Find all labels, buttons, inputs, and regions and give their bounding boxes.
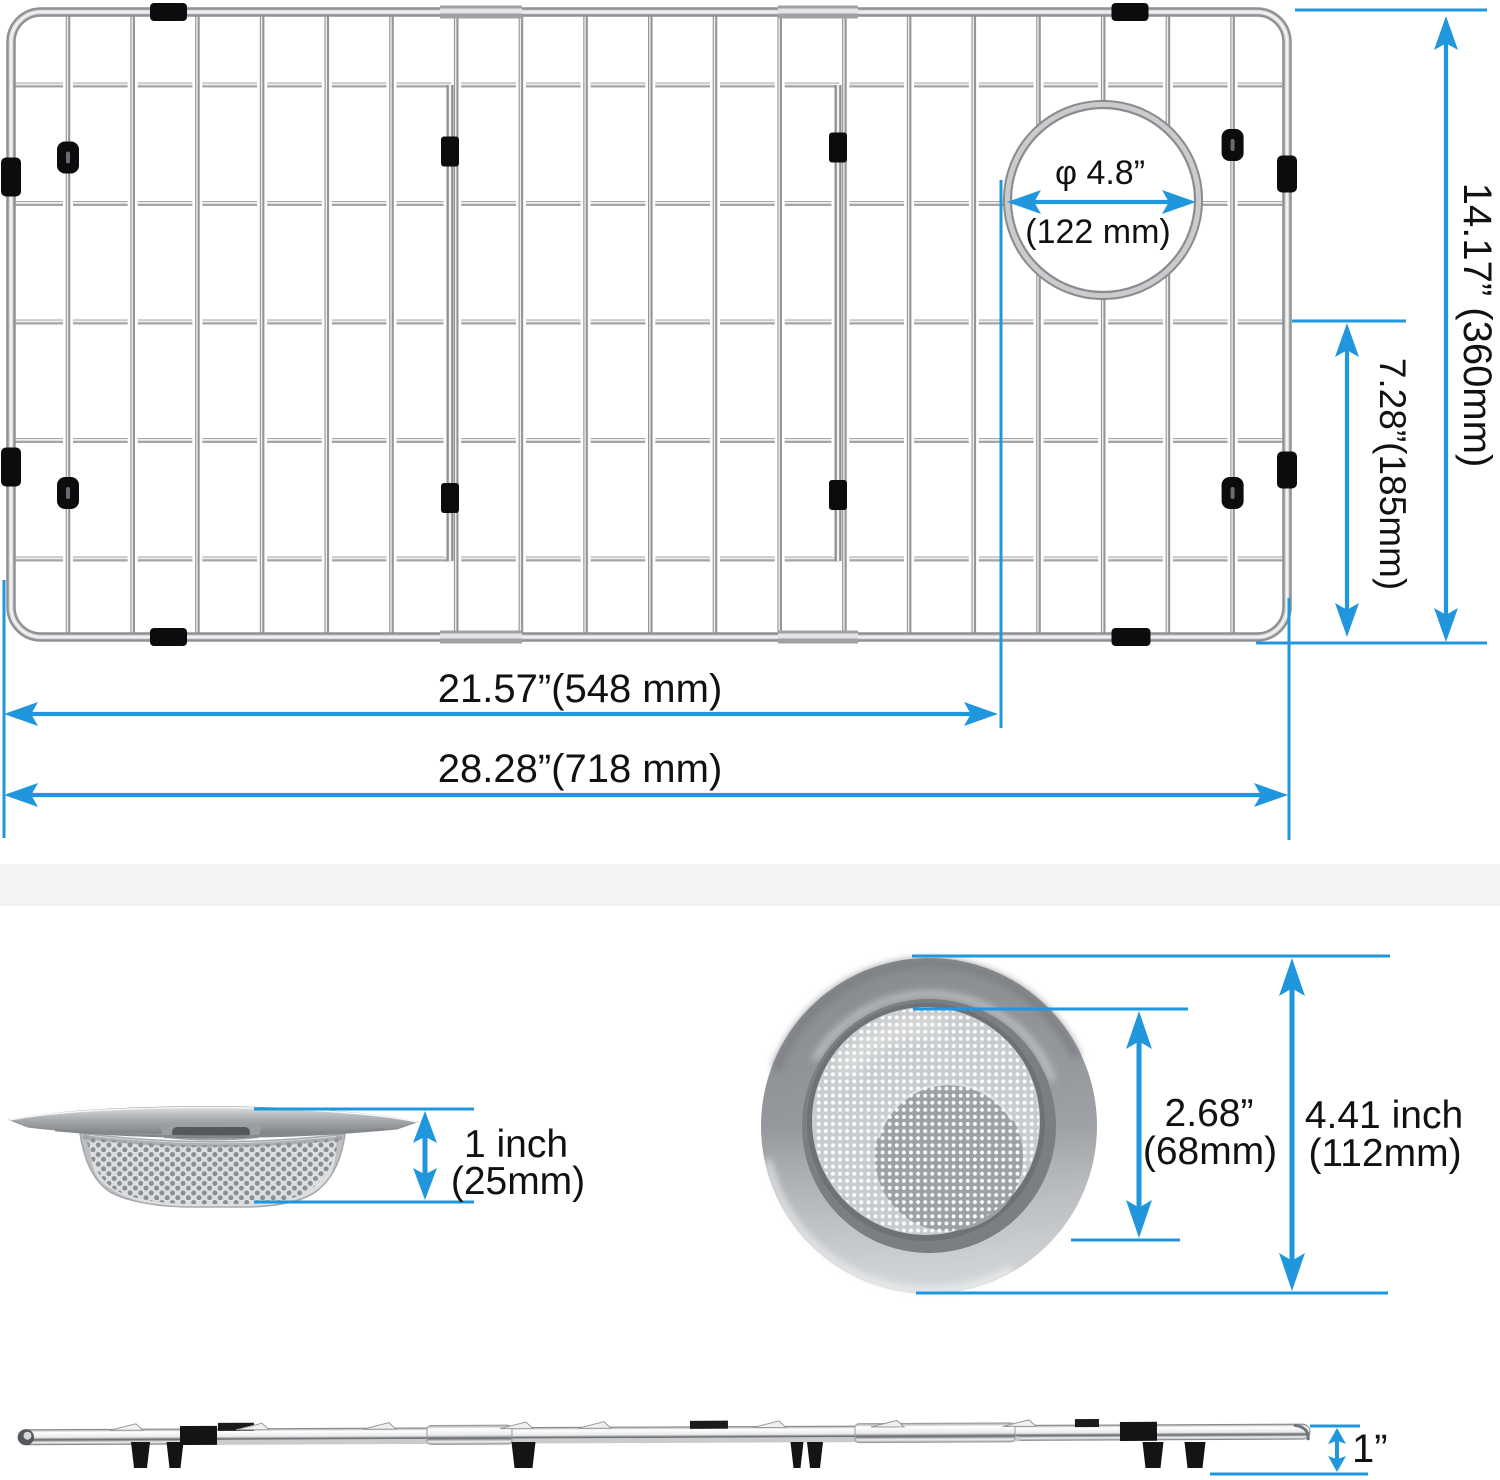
- svg-text:(25mm): (25mm): [451, 1160, 585, 1203]
- svg-text:28.28”(718 mm): 28.28”(718 mm): [438, 747, 723, 791]
- svg-text:7.28”(185mm): 7.28”(185mm): [1372, 358, 1413, 590]
- svg-text:2.68”: 2.68”: [1165, 1092, 1254, 1135]
- svg-text:21.57”(548 mm): 21.57”(548 mm): [438, 667, 723, 711]
- svg-text:4.41 inch: 4.41 inch: [1305, 1094, 1463, 1137]
- svg-text:(112mm): (112mm): [1308, 1132, 1461, 1175]
- svg-text:(122 mm): (122 mm): [1025, 213, 1170, 251]
- svg-text:14.17” (360mm): 14.17” (360mm): [1455, 183, 1499, 468]
- svg-text:1”: 1”: [1352, 1427, 1388, 1471]
- svg-text:φ 4.8”: φ 4.8”: [1055, 154, 1145, 192]
- svg-text:(68mm): (68mm): [1143, 1130, 1277, 1173]
